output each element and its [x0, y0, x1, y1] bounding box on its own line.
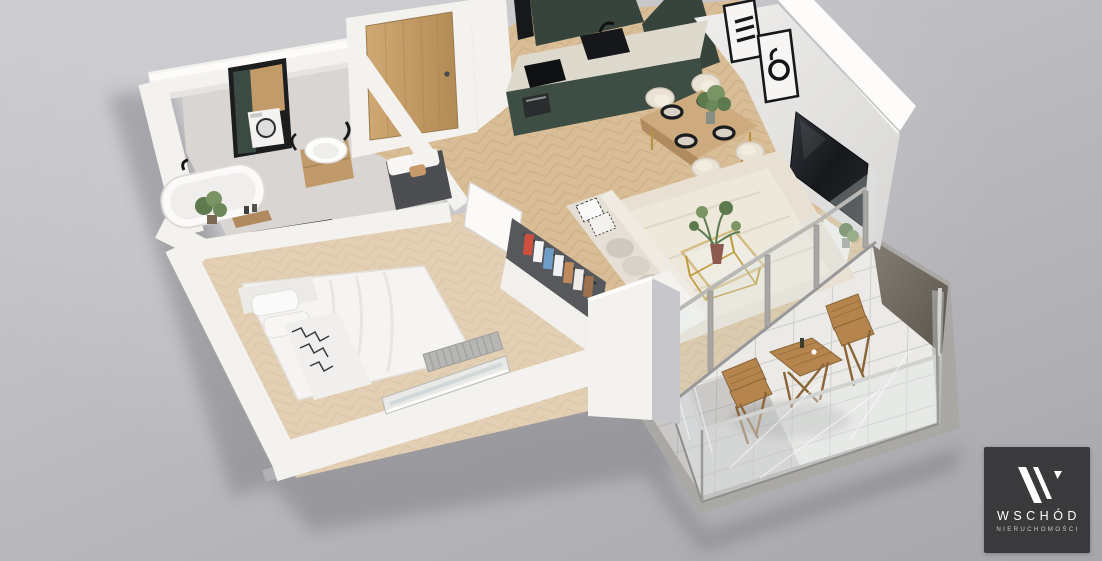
door-post — [708, 291, 713, 371]
art-frame-1 — [724, 0, 762, 62]
door-handle — [444, 71, 449, 76]
door-post — [863, 191, 868, 248]
logo-subtitle: NIERUCHOMOŚCI — [996, 526, 1079, 533]
washing-machine-niche — [228, 58, 292, 158]
cup — [811, 349, 816, 354]
living-balcony-wall — [588, 278, 680, 424]
door-post — [814, 225, 819, 288]
wschod-logo: WSCHÓD NIERUCHOMOŚCI — [984, 447, 1090, 553]
logo-title: WSCHÓD — [997, 509, 1081, 523]
door-post — [765, 255, 770, 327]
wschod-monogram-icon — [1012, 467, 1062, 503]
bottle — [800, 338, 804, 348]
art-frame-2 — [758, 30, 798, 102]
floorplan-render — [0, 0, 1102, 561]
